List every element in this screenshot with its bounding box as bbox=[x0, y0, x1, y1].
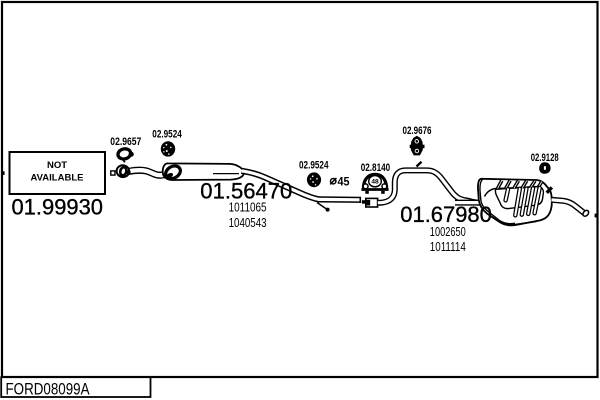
svg-text:AVAILABLE: AVAILABLE bbox=[31, 173, 84, 184]
svg-text:1002650: 1002650 bbox=[430, 225, 466, 239]
svg-text:1011065: 1011065 bbox=[229, 201, 267, 215]
svg-text:1011114: 1011114 bbox=[430, 240, 466, 254]
svg-text:02.9657: 02.9657 bbox=[110, 136, 141, 148]
svg-text:01.67980: 01.67980 bbox=[400, 202, 492, 227]
svg-text:48: 48 bbox=[371, 179, 379, 186]
svg-text:45: 45 bbox=[338, 176, 351, 188]
svg-text:02.8140: 02.8140 bbox=[361, 162, 391, 174]
svg-text:FORD08099A: FORD08099A bbox=[6, 381, 90, 399]
svg-text:01.99930: 01.99930 bbox=[12, 195, 104, 220]
svg-text:1040543: 1040543 bbox=[229, 216, 267, 230]
svg-text:02.9128: 02.9128 bbox=[531, 152, 559, 164]
svg-text:02.9524: 02.9524 bbox=[152, 129, 182, 141]
svg-text:02.9676: 02.9676 bbox=[403, 125, 432, 137]
svg-text:NOT: NOT bbox=[47, 160, 67, 171]
svg-text:02.9524: 02.9524 bbox=[299, 159, 329, 171]
